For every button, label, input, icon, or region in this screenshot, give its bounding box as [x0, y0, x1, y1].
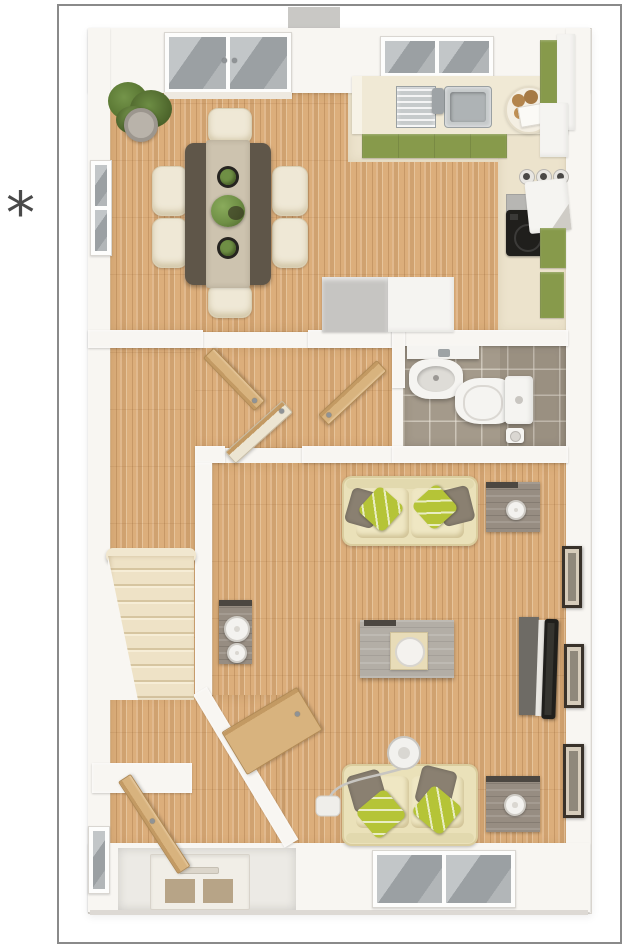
front-door	[150, 854, 250, 910]
french-door-right-glass	[230, 37, 287, 89]
toilet-cistern	[505, 376, 533, 424]
front-door-glass	[165, 879, 195, 903]
sofa-top	[342, 476, 478, 546]
sink-drainer	[396, 86, 436, 128]
bread-roll	[524, 90, 538, 104]
wall-hall-dining-right	[308, 330, 392, 348]
french-doors	[164, 32, 292, 94]
side-table-edge	[486, 776, 540, 782]
french-doors-threshold	[164, 92, 292, 99]
decor-bowl	[227, 643, 247, 663]
table-plant-shadow	[228, 206, 244, 220]
bread-bin	[524, 178, 571, 234]
green-base-cabinet	[540, 272, 564, 318]
wall-bathroom-bottom	[392, 446, 568, 463]
table-plant	[220, 240, 236, 256]
french-door-left-glass	[169, 37, 226, 89]
kitchen-window-glass	[385, 41, 435, 73]
green-wall-cabinet	[540, 40, 557, 103]
arc-floor-lamp	[300, 728, 430, 824]
footnote-asterisk: *	[6, 184, 48, 242]
table-plant	[220, 169, 236, 185]
candle	[504, 794, 526, 816]
console-edge	[219, 600, 252, 606]
sink-faucet-icon	[432, 88, 444, 114]
wall-bottom-shadow	[90, 910, 588, 915]
toilet-roll	[510, 431, 521, 442]
wall-bathroom-top	[392, 330, 568, 346]
kitchen-base-cabinets	[362, 134, 507, 158]
basin-drain	[433, 375, 439, 381]
living-window-glass	[446, 855, 511, 903]
sink-basin	[450, 92, 486, 122]
tray-plate	[395, 637, 425, 667]
plant-pot	[124, 108, 158, 142]
wall-living-top-left	[195, 446, 225, 463]
wall-hall-dining-left	[88, 330, 203, 348]
picture	[568, 553, 576, 601]
dining-chair	[208, 284, 252, 318]
appliance-white-box	[388, 277, 454, 332]
picture	[569, 751, 578, 811]
toilet-roll-holder	[506, 428, 524, 443]
toilet-seat-line	[463, 385, 503, 421]
flush-button-icon	[515, 396, 523, 404]
living-window	[372, 850, 516, 908]
understairs-bulkhead	[92, 763, 192, 793]
picture-frame	[562, 546, 582, 608]
dining-window-glass	[95, 210, 107, 251]
coffee-table	[360, 620, 454, 678]
kitchen-window-glass	[439, 41, 489, 73]
picture-frame	[563, 744, 584, 818]
corner-cabinet	[540, 103, 568, 157]
dining-window-glass	[95, 165, 107, 206]
entry-window-glass	[93, 831, 105, 889]
dining-window	[90, 160, 112, 256]
worktop-end-panel	[352, 76, 362, 134]
floorplan-render: *	[0, 0, 626, 949]
decor-bowl	[224, 616, 250, 642]
cooktop-control	[510, 214, 518, 220]
entry-window	[88, 826, 110, 894]
basin-faucet-icon	[438, 349, 450, 357]
dining-chair	[152, 218, 188, 268]
appliance-gray-box	[322, 277, 388, 332]
wall-bathroom-left	[392, 330, 405, 388]
french-door-handle-icon	[232, 58, 237, 63]
sofa-back	[346, 833, 474, 843]
lamp-base	[316, 796, 340, 816]
tv-screen-inner	[544, 623, 554, 715]
living-window-glass	[377, 855, 442, 903]
door-handle-icon	[294, 711, 301, 718]
door-handle-icon	[278, 408, 285, 415]
lamp-bulb	[398, 747, 410, 759]
dining-chair	[272, 218, 308, 268]
green-base-cabinet	[540, 228, 566, 268]
candle	[506, 500, 526, 520]
coffee-table-remote	[364, 620, 396, 626]
french-door-handle-icon	[222, 58, 227, 63]
door-handle-icon	[325, 411, 332, 418]
door-handle-icon	[251, 397, 258, 404]
wall-living-top-right	[302, 446, 392, 463]
dining-chair	[208, 108, 252, 144]
dining-chair	[152, 166, 188, 216]
front-door-glass	[203, 879, 233, 903]
door-handle-icon	[149, 818, 156, 825]
wall-living-left	[195, 463, 212, 697]
side-table-edge	[486, 482, 518, 488]
kitchen-window	[380, 36, 494, 78]
sink-bowl	[444, 86, 492, 128]
dining-chair	[272, 166, 308, 216]
picture-frame	[564, 644, 584, 708]
picture	[570, 651, 578, 701]
